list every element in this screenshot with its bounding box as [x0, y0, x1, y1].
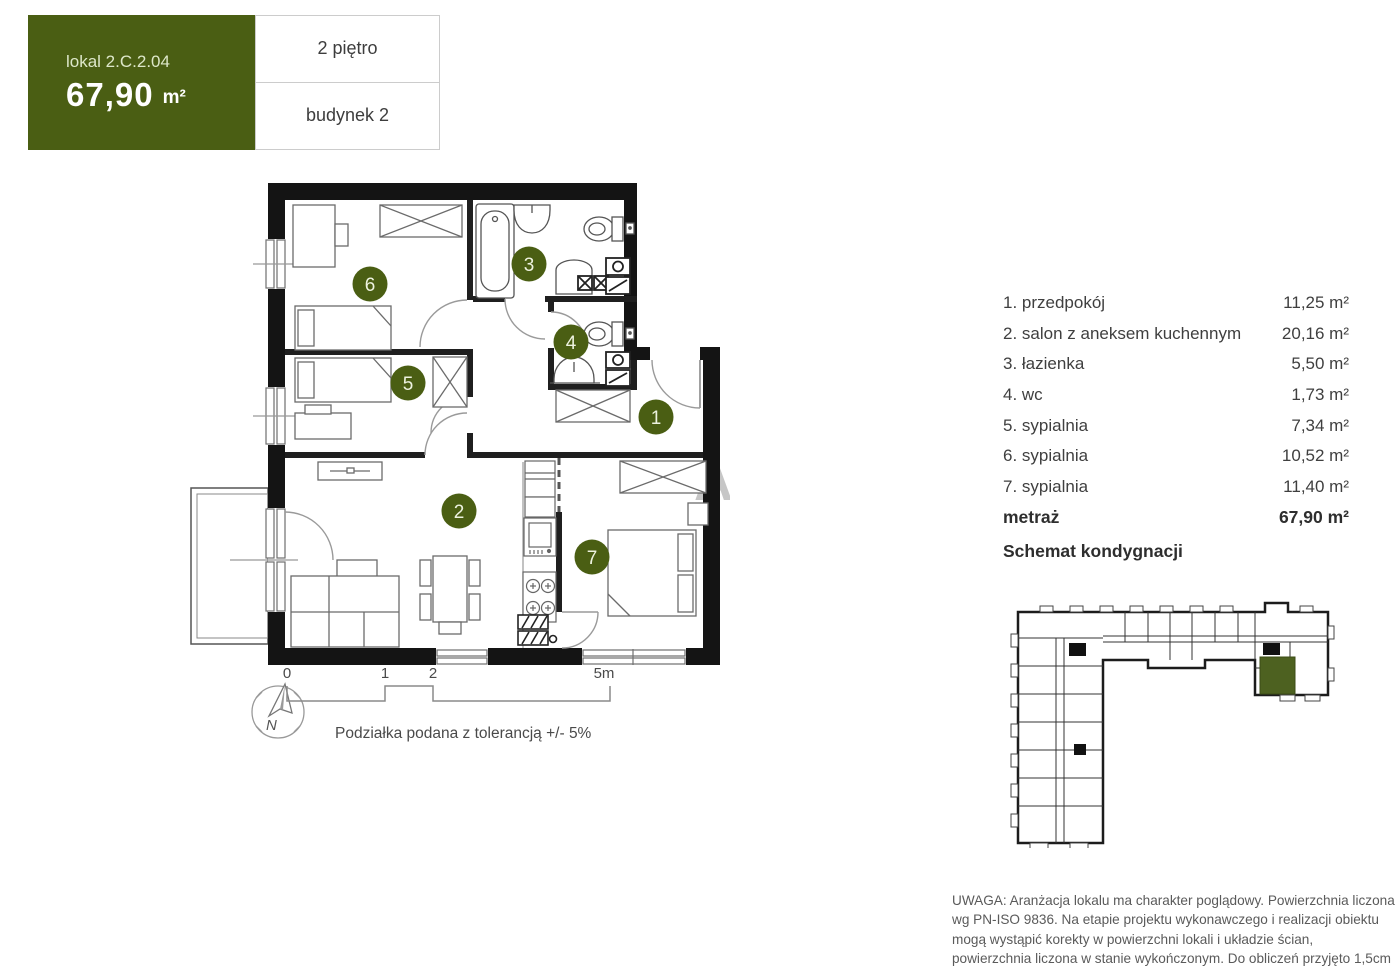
wardrobe-icon — [620, 461, 706, 493]
room-row: 5. sypialnia7,34 m² — [1003, 410, 1349, 441]
washer-icon — [606, 352, 630, 386]
sofa-icon — [291, 576, 399, 647]
room-row: 4. wc1,73 m² — [1003, 380, 1349, 411]
scale-bar: 0 1 2 5m Podziałka podana z tolerancją +… — [283, 665, 615, 742]
scale-tick-0: 0 — [283, 665, 291, 682]
floor-cell: 2 piętro — [256, 16, 439, 83]
room-row: 6. sypialnia10,52 m² — [1003, 441, 1349, 472]
scale-note: Podziałka podana z tolerancją +/- 5% — [335, 725, 592, 742]
fridge-icon — [525, 461, 555, 497]
room-row: 3. łazienka5,50 m² — [1003, 349, 1349, 380]
bathtub-icon — [476, 204, 514, 298]
floorplan-page: lokal 2.C.2.04 67,90 m² 2 piętro budynek… — [0, 0, 1399, 969]
building-cell: budynek 2 — [256, 83, 439, 150]
room-badge-6: 6 — [365, 275, 376, 296]
room-label: 7. sypialnia — [1003, 477, 1088, 497]
room-badge-5: 5 — [403, 374, 414, 395]
room-badge-1: 1 — [651, 408, 662, 429]
room-row: 1. przedpokój11,25 m² — [1003, 288, 1349, 319]
room-label: 6. sypialnia — [1003, 446, 1088, 466]
highlighted-unit — [1260, 657, 1295, 694]
unit-summary-box: lokal 2.C.2.04 67,90 m² — [28, 15, 255, 150]
bed-icon — [608, 530, 696, 616]
room-label: 5. sypialnia — [1003, 416, 1088, 436]
unit-area: 67,90 m² — [66, 76, 255, 114]
sink-icon — [550, 357, 600, 383]
unit-area-value: 67,90 — [66, 76, 154, 114]
wardrobe-icon — [380, 205, 462, 237]
room-area: 7,34 m² — [1291, 416, 1349, 436]
dining-table-icon — [420, 556, 480, 634]
room-badge-4: 4 — [566, 333, 577, 354]
room-label: 3. łazienka — [1003, 354, 1084, 374]
room-list: 1. przedpokój11,25 m² 2. salon z aneksem… — [1003, 288, 1349, 562]
unit-meta-cells: 2 piętro budynek 2 — [255, 15, 440, 150]
north-label: N — [266, 717, 277, 734]
room-area: 11,40 m² — [1283, 477, 1349, 497]
room-label: 2. salon z aneksem kuchennym — [1003, 324, 1241, 344]
balcony — [191, 488, 268, 644]
room-row: 2. salon z aneksem kuchennym20,16 m² — [1003, 319, 1349, 350]
disclaimer-text: UWAGA: Aranżacja lokalu ma charakter pog… — [952, 891, 1395, 969]
sink-icon — [514, 205, 550, 233]
room-badge-7: 7 — [587, 548, 598, 569]
scale-tick-2: 2 — [429, 665, 437, 682]
wardrobe-icon — [433, 357, 467, 407]
room-label: 4. wc — [1003, 385, 1043, 405]
unit-area-unit: m² — [163, 87, 186, 109]
room-area: 10,52 m² — [1282, 446, 1349, 466]
scale-tick-1: 1 — [381, 665, 389, 682]
room-badge-2: 2 — [454, 502, 465, 523]
floor-schematic — [1000, 598, 1395, 848]
wardrobe-icon — [556, 390, 630, 422]
bed-icon — [295, 306, 391, 350]
room-row: 7. sypialnia11,40 m² — [1003, 472, 1349, 503]
kitchen-icons — [518, 461, 557, 648]
north-arrow: N — [252, 684, 304, 738]
room-label: 1. przedpokój — [1003, 293, 1105, 313]
unit-label: lokal 2.C.2.04 — [66, 52, 255, 72]
header-card: lokal 2.C.2.04 67,90 m² 2 piętro budynek… — [28, 15, 440, 150]
bathroom-icons — [476, 204, 634, 386]
scale-tick-5m: 5m — [594, 665, 615, 682]
room-area: 11,25 m² — [1283, 293, 1349, 313]
floor-plan: A — [185, 170, 730, 755]
room-area: 20,16 m² — [1282, 324, 1349, 344]
room-area: 1,73 m² — [1291, 385, 1349, 405]
total-row: metraż67,90 m² — [1003, 502, 1349, 533]
bed-icon — [295, 358, 391, 402]
oven-icon — [524, 518, 556, 556]
room-badge-3: 3 — [524, 255, 535, 276]
total-area: 67,90 m² — [1279, 507, 1349, 528]
schematic-heading: Schemat kondygnacji — [1003, 541, 1349, 562]
room-area: 5,50 m² — [1291, 354, 1349, 374]
total-label: metraż — [1003, 507, 1059, 528]
